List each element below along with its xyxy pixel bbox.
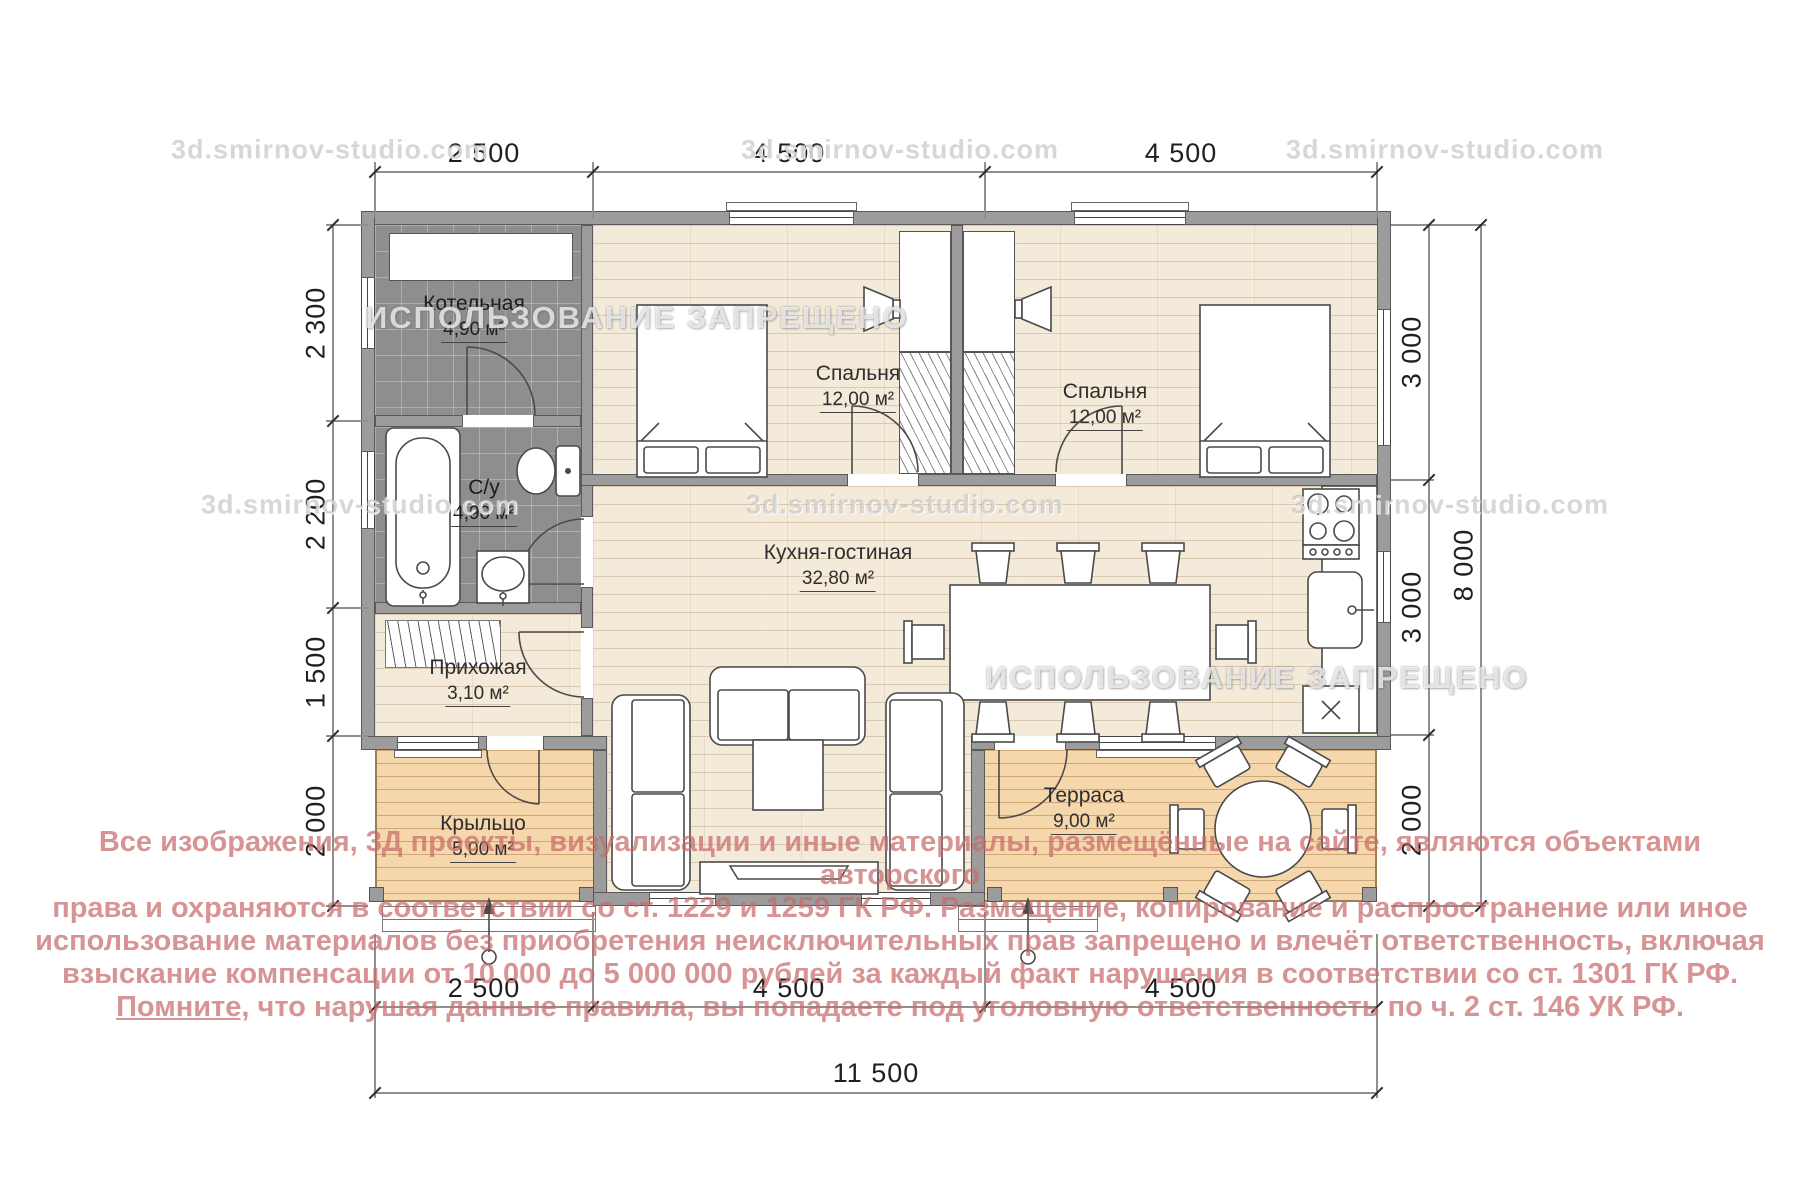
copyright-line: Помните, что нарушая данные правила, вы … [20,991,1780,1024]
bathroom-sink [477,551,529,606]
watermark-studio: 3d.smirnov-studio.com [741,135,1059,166]
room-name: Прихожая [429,656,526,680]
dim-label: 3 000 [1397,571,1428,644]
room-area: 32,80 м² [800,568,876,592]
watermark-studio: 3d.smirnov-studio.com [1286,135,1604,166]
copyright-line: использование материалов без приобретени… [20,925,1780,958]
room-name: Спальня [1063,380,1147,404]
dim-label: 3 000 [1397,316,1428,389]
door-boiler [467,347,535,415]
sofa-main [710,667,865,745]
watermark-studio: 3d.smirnov-studio.com [201,490,519,521]
copyright-line: Все изображения, 3Д проекты, визуализаци… [20,826,1780,892]
watermark-studio: 3d.smirnov-studio.com [746,490,1064,521]
floor-plan-canvas: Котельная 4,90 м² С/у 4,90 м² Прихожая 3… [0,0,1800,1200]
copyright-line: взыскание компенсации от 10 000 до 5 000… [20,958,1780,991]
bed-bedroom2 [1200,305,1330,477]
room-name: Кухня-гостиная [764,541,913,565]
copyright-notice: Все изображения, 3Д проекты, визуализаци… [20,826,1780,1024]
dim-label: 1 500 [301,636,332,709]
toilet [517,446,580,496]
dim-label-total: 11 500 [833,1058,920,1089]
door-porch-entry [487,750,539,804]
room-area: 3,10 м² [445,683,511,707]
room-area: 12,00 м² [820,389,896,413]
copyright-line: права и охраняются в соответствии со ст.… [20,892,1780,925]
watermark-studio: 3d.smirnov-studio.com [1291,490,1609,521]
label-bedroom1: Спальня 12,00 м² [816,362,900,413]
room-name: Спальня [816,362,900,386]
tv-bedroom2 [1015,287,1051,331]
door-bedroom1 [852,406,918,474]
dim-label: 2 300 [301,287,332,360]
room-area: 12,00 м² [1067,407,1143,431]
watermark-studio: 3d.smirnov-studio.com [171,135,489,166]
dim-label-total: 8 000 [1449,529,1480,602]
label-bedroom2: Спальня 12,00 м² [1063,380,1147,431]
watermark-forbidden: ИСПОЛЬЗОВАНИЕ ЗАПРЕЩЕНО [985,660,1529,696]
copyright-rest: что нарушая данные правила, вы попадаете… [249,991,1683,1023]
room-name: Терраса [1044,784,1125,808]
copyright-underlined: Помните, [116,991,249,1023]
coffee-table [753,740,823,810]
watermark-forbidden: ИСПОЛЬЗОВАНИЕ ЗАПРЕЩЕНО [365,300,909,336]
dim-label: 4 500 [1145,138,1218,169]
label-hallway: Прихожая 3,10 м² [429,656,526,707]
door-hallway [519,632,584,697]
label-kitchen-living: Кухня-гостиная 32,80 м² [764,541,913,592]
